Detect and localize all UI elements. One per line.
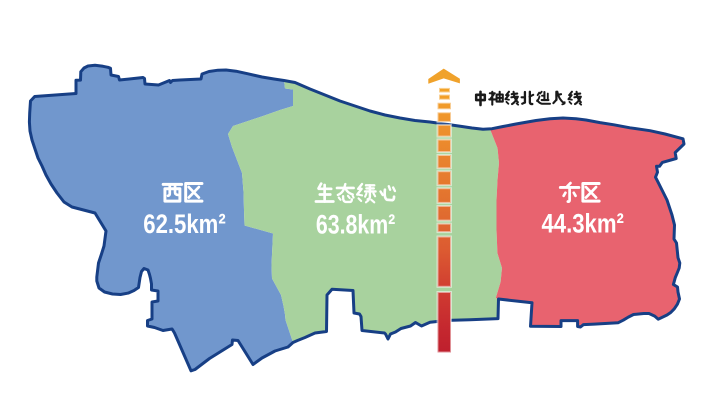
svg-text:44.3km²: 44.3km² bbox=[541, 209, 624, 239]
svg-text:62.5km²: 62.5km² bbox=[143, 209, 225, 239]
svg-text:63.8km²: 63.8km² bbox=[316, 210, 395, 240]
